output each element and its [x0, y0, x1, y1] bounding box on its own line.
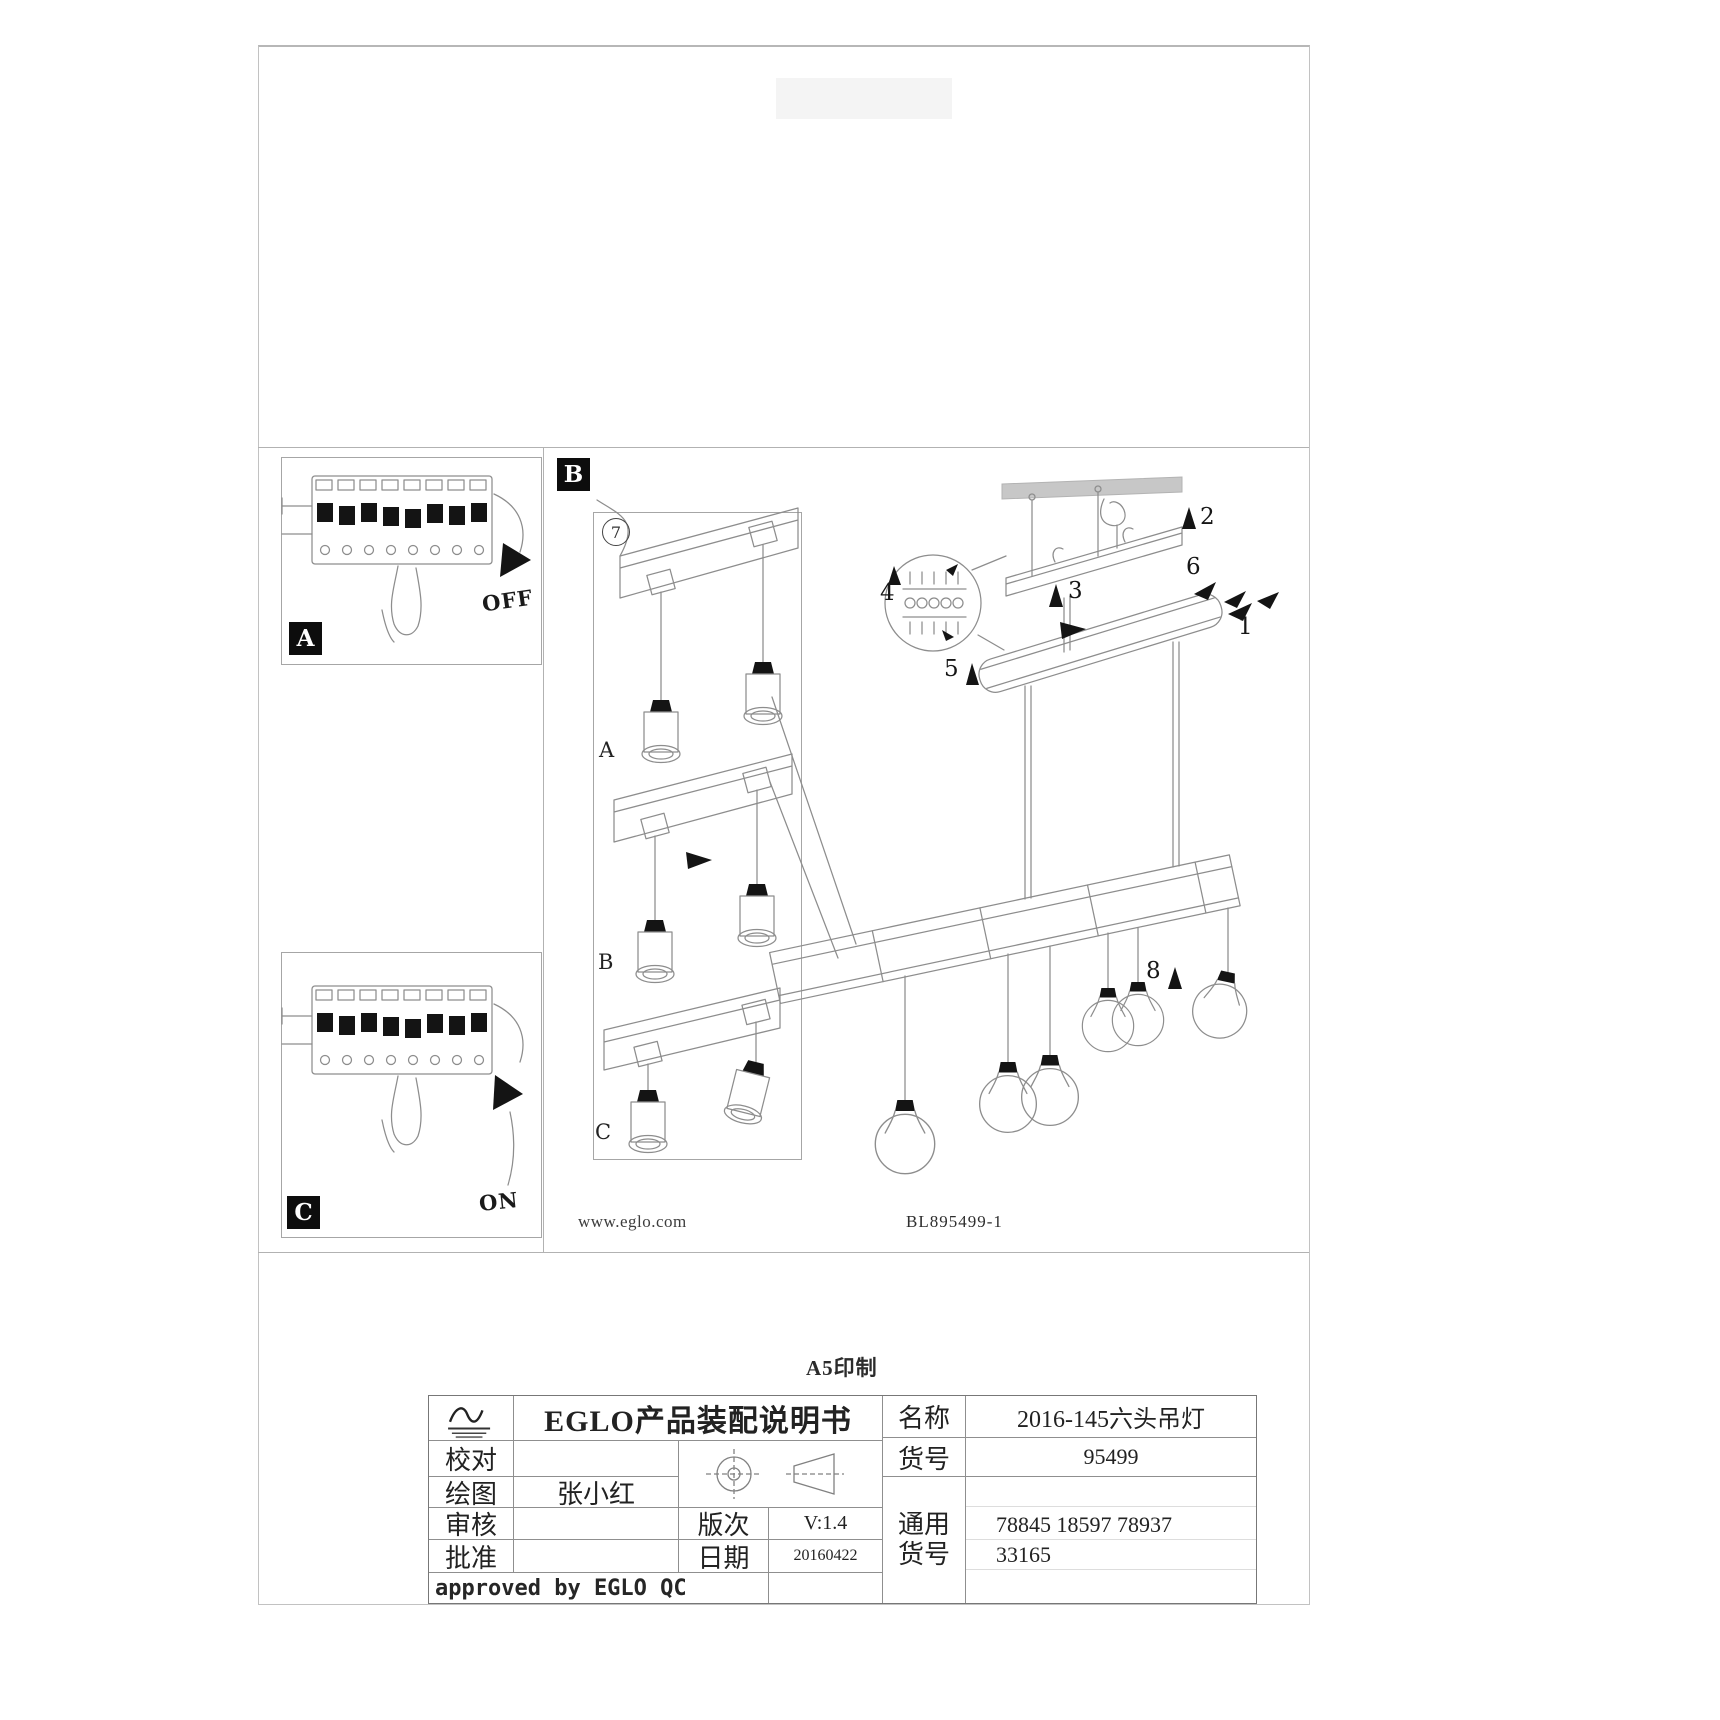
- approved-empty-cell: [769, 1573, 883, 1603]
- drawing-number-text: BL895499-1: [906, 1212, 1003, 1232]
- proofread-label: 校对: [429, 1441, 514, 1477]
- approved-note: approved by EGLO QC: [429, 1573, 769, 1603]
- projection-symbol-cell: [679, 1441, 883, 1508]
- name-label: 名称: [883, 1396, 966, 1438]
- item-label: 货号: [883, 1438, 966, 1477]
- callout-2: 2: [1200, 506, 1215, 529]
- section-label-c: C: [287, 1196, 320, 1229]
- callout-4: 4: [880, 582, 895, 605]
- step-number-7: 7: [602, 518, 630, 546]
- common-item-values: 78845 18597 78937 33165: [966, 1477, 1256, 1603]
- approve-value: [514, 1540, 679, 1573]
- section-label-b-text: B: [564, 461, 583, 488]
- eglo-logo: [436, 1397, 506, 1439]
- step-diagram-sub-b: [614, 754, 792, 983]
- proofread-value: [514, 1441, 679, 1477]
- breaker-diagram-a: [282, 476, 531, 642]
- item-value: 95499: [966, 1438, 1256, 1477]
- common-item-label-line1: 通用: [898, 1510, 950, 1540]
- approve-label: 批准: [429, 1540, 514, 1573]
- instruction-sheet-scan: A B C OFF ON 7 A B C 1 2 3 4 5 6 8 www.e…: [0, 0, 1720, 1720]
- name-value: 2016-145六头吊灯: [966, 1396, 1256, 1438]
- table-grid-line: [966, 1539, 1256, 1540]
- review-label: 审核: [429, 1508, 514, 1540]
- title-block: EGLO产品装配说明书 校对 绘图 张小红 审核 版次 V:1: [428, 1395, 1257, 1604]
- section-label-c-text: C: [294, 1199, 312, 1226]
- draft-value: 张小红: [514, 1477, 679, 1508]
- projection-symbol: [686, 1443, 876, 1505]
- print-note: A5印制: [806, 1352, 878, 1382]
- main-assembly-diagram: [770, 477, 1279, 1174]
- table-grid-line: [966, 1506, 1256, 1507]
- common-item-value-line1: 78845 18597 78937: [996, 1510, 1172, 1540]
- table-grid-line: [966, 1569, 1256, 1570]
- step-diagram-sub-c: [604, 988, 780, 1153]
- date-label: 日期: [679, 1540, 769, 1573]
- review-value: [514, 1508, 679, 1540]
- section-label-a-text: A: [297, 625, 315, 652]
- section-label-b: B: [557, 458, 590, 491]
- title-block-left: EGLO产品装配说明书 校对 绘图 张小红 审核 版次 V:1: [429, 1396, 883, 1603]
- sub-label-c: C: [595, 1122, 611, 1143]
- website-text: www.eglo.com: [578, 1212, 687, 1232]
- version-value: V:1.4: [769, 1508, 883, 1540]
- sub-label-a: A: [599, 740, 614, 761]
- callout-1: 1: [1238, 616, 1253, 639]
- callout-5: 5: [944, 658, 959, 681]
- callout-3: 3: [1068, 580, 1083, 603]
- switch-state-on: ON: [478, 1187, 520, 1216]
- draft-label: 绘图: [429, 1477, 514, 1508]
- section-label-a: A: [289, 622, 322, 655]
- common-item-value-line2: 33165: [996, 1540, 1051, 1570]
- common-item-label-line2: 货号: [898, 1540, 950, 1570]
- title-block-right: 名称 2016-145六头吊灯 货号 95499 通用 货号 78845 185…: [883, 1396, 1256, 1603]
- common-item-label: 通用 货号: [883, 1477, 966, 1603]
- title-block-header: EGLO产品装配说明书: [514, 1396, 883, 1441]
- callout-8: 8: [1146, 960, 1161, 983]
- logo-cell: [429, 1396, 514, 1441]
- breaker-diagram-c: [282, 986, 523, 1185]
- date-value: 20160422: [769, 1540, 883, 1573]
- sub-label-b: B: [598, 952, 613, 973]
- version-label: 版次: [679, 1508, 769, 1540]
- callout-6: 6: [1186, 556, 1201, 579]
